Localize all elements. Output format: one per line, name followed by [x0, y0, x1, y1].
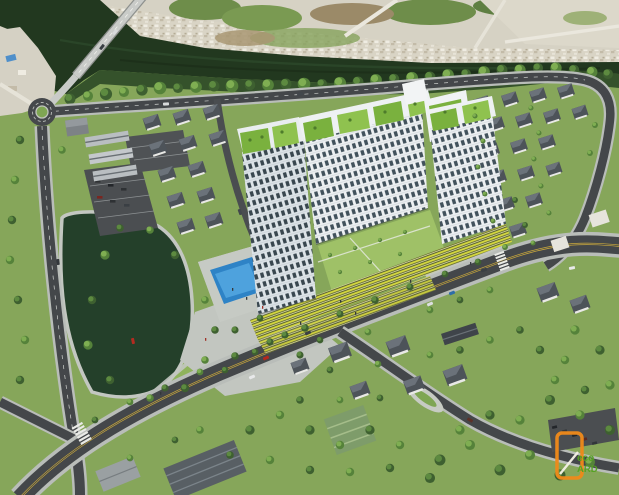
pond	[61, 212, 193, 397]
clubhouse	[65, 118, 89, 137]
aerial-render-canvas: eco ARD	[0, 0, 619, 495]
roundabout	[28, 98, 56, 126]
aerial-render: eco ARD	[0, 0, 619, 495]
watermark-text-bottom: ARD	[577, 464, 598, 475]
roundabout-island	[36, 106, 48, 118]
watermark-text-top: eco	[577, 453, 594, 464]
